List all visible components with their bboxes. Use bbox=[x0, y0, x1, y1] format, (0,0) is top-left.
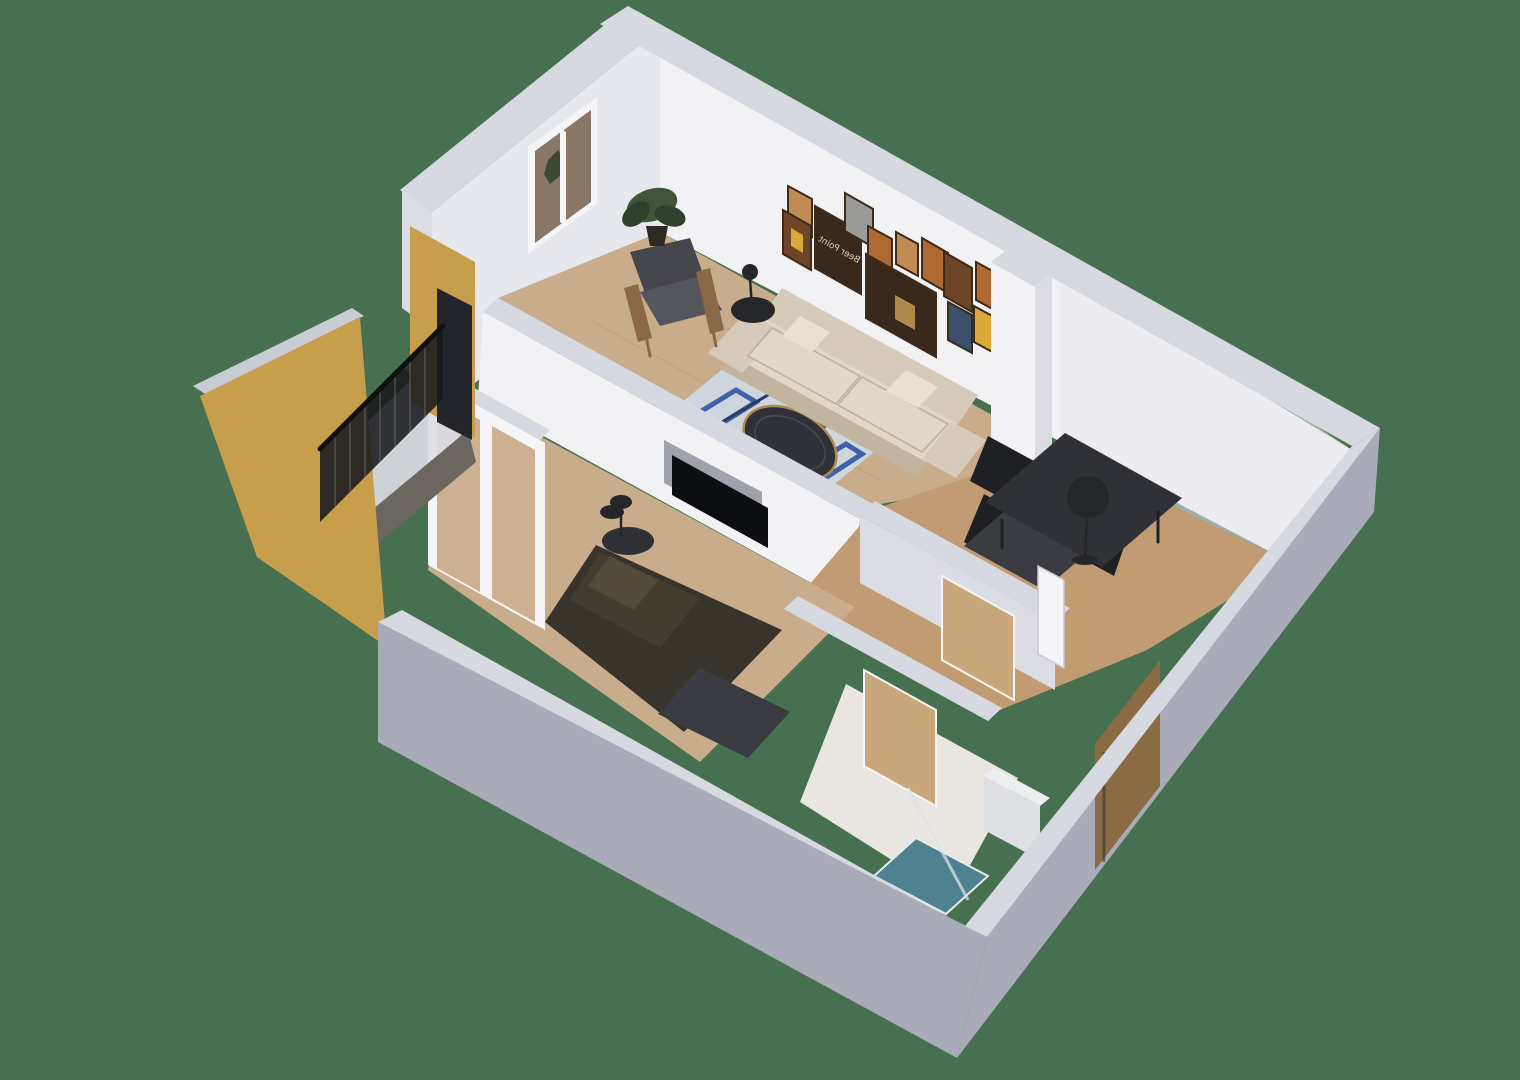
dining-lamp-base bbox=[1072, 555, 1098, 565]
lamp-head bbox=[742, 264, 758, 280]
table-lamp-head bbox=[610, 495, 632, 509]
column bbox=[991, 249, 1052, 476]
floorplan-render: Beer Point bbox=[0, 0, 1520, 1080]
side-table-top bbox=[602, 527, 654, 555]
dining-lamp-head bbox=[1067, 476, 1109, 518]
sliding-door-glass bbox=[492, 426, 535, 622]
hallway-white-door bbox=[1038, 566, 1064, 668]
apartment-3d-scene: Beer Point bbox=[0, 0, 1520, 1080]
column-side-face bbox=[1035, 273, 1052, 476]
window-mullion bbox=[560, 128, 566, 226]
lamp-base bbox=[731, 297, 775, 323]
